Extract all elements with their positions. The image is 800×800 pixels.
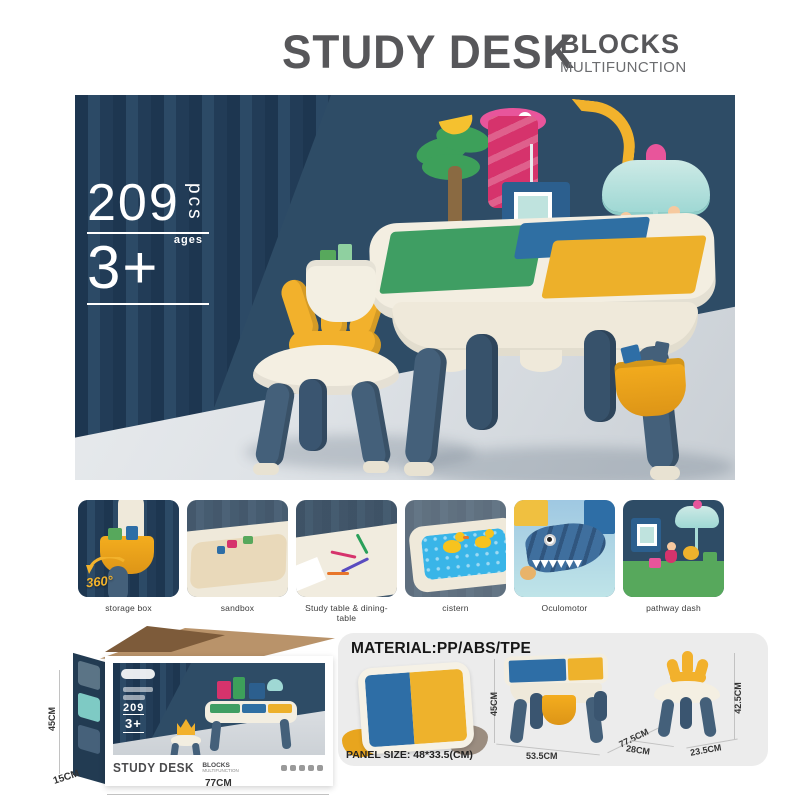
box-subtitle-multifunction: MULTIFUNCTION [202, 769, 238, 774]
box-width-label: 77CM [205, 778, 232, 789]
feature-caption: cistern [405, 603, 506, 613]
table-basin [187, 519, 288, 597]
block-piece [649, 558, 661, 568]
chair-leg [299, 379, 327, 451]
baseplate-yellow [541, 235, 707, 298]
hanging-bucket [542, 695, 576, 725]
baseplate-yellow [568, 657, 604, 680]
building-panel-graphic [357, 661, 475, 755]
table-diagram: 45CM 53.5CM 77.5CM [490, 641, 630, 759]
water-basin [408, 517, 506, 594]
marker-pen [356, 533, 369, 554]
block-piece [514, 500, 548, 526]
product-poster: STUDY DESK BLOCKS MULTIFUNCTION 209 pcs … [0, 0, 800, 800]
feature-gallery: 360° storage box sandbox [78, 500, 724, 623]
side-photo [78, 724, 100, 754]
chair-leg [170, 743, 179, 755]
feature-item: cistern [405, 500, 506, 623]
pieces-age-callout: 209 3+ [123, 687, 153, 733]
block-piece [703, 552, 717, 564]
side-photo [78, 660, 100, 690]
baseplate-blue [242, 704, 266, 713]
drawing-paper [296, 557, 326, 592]
chair-leg [657, 698, 675, 737]
hero-photo: 209 pcs ages 3+ [75, 95, 735, 480]
feature-photo-sandbox [187, 500, 288, 597]
box-title: STUDY DESK [113, 761, 194, 775]
box-height-label: 45CM [47, 707, 57, 731]
mini-crown [668, 649, 708, 683]
storage-cup [306, 260, 376, 322]
feature-photo-study-table [296, 500, 397, 597]
mini-crown [177, 719, 195, 735]
feature-item: sandbox [187, 500, 288, 623]
pieces-age-callout: 209 pcs ages 3+ [87, 179, 237, 307]
chair-diagram: 28CM 23.5CM 42.5CM [638, 649, 738, 755]
certification-icons [281, 765, 325, 771]
rotation-overlay: 360° [85, 573, 113, 591]
chair-foot [253, 463, 279, 475]
box-side-panel [73, 653, 105, 784]
feature-photo-cistern [405, 500, 506, 597]
block-piece [108, 528, 122, 540]
feature-item: 360° storage box [78, 500, 179, 623]
carousel-finial [693, 500, 702, 509]
brand-logo [121, 669, 155, 679]
subtitle-blocks: BLOCKS [560, 31, 750, 58]
block-piece [217, 681, 231, 699]
baseplate-green [623, 561, 724, 597]
table-foot [650, 466, 680, 480]
block-house [631, 518, 661, 552]
table-height-label: 45CM [489, 692, 499, 716]
skirt-scallop [520, 350, 562, 372]
carousel-canopy [675, 506, 719, 528]
cert-icon [308, 765, 314, 771]
box-artwork: 209 3+ [113, 663, 325, 755]
table-leg [594, 691, 607, 721]
box-subtitle: BLOCKS MULTIFUNCTION [202, 763, 238, 774]
lion-toy [683, 546, 699, 560]
toy-piece [227, 540, 237, 548]
block-piece [126, 526, 138, 540]
duck-toy [485, 529, 494, 538]
block-piece [267, 679, 283, 691]
duck-toy [463, 536, 469, 539]
feature-item: Study table & dining-table [296, 500, 397, 623]
feature-caption: Study table & dining-table [296, 603, 397, 623]
table-leg [509, 698, 527, 743]
crayon [327, 572, 349, 575]
specs-panel: MATERIAL:PP/ABS/TPE PANEL SIZE: 48*33.5(… [338, 633, 768, 766]
feature-item: Oculomotor [514, 500, 615, 623]
chair-leg [254, 381, 296, 469]
table-leg [466, 334, 498, 430]
block-table [370, 110, 715, 480]
text-bar [123, 687, 153, 692]
feature-item: pathway dash [623, 500, 724, 623]
ages-label: ages [174, 234, 203, 246]
table-width-label: 53.5CM [526, 751, 558, 761]
chair-height-label: 42.5CM [733, 682, 743, 714]
pieces-count: 209 [123, 703, 153, 714]
carousel-canopy [602, 160, 710, 212]
block-piece [249, 683, 265, 699]
croc-pupil [547, 537, 552, 542]
page-title: STUDY DESK [282, 24, 575, 79]
sand-surface [190, 533, 287, 589]
pieces-unit: pcs [183, 179, 205, 222]
box-front-panel: 209 3+ [105, 656, 333, 786]
crayon [341, 557, 369, 573]
feature-photo-pathway-dash [623, 500, 724, 597]
table-foot [404, 462, 434, 476]
page-subtitle-group: BLOCKS MULTIFUNCTION [560, 31, 750, 75]
divider [87, 303, 209, 305]
baseplate-green [210, 704, 240, 713]
diagram-tabletop [504, 653, 609, 687]
pieces-count: 209 [87, 179, 180, 228]
figure-body [665, 550, 677, 563]
dimension-line [59, 670, 60, 774]
subtitle-multifunction: MULTIFUNCTION [560, 60, 750, 75]
cert-icon [290, 765, 296, 771]
house-window [637, 524, 657, 546]
hanging-bucket [614, 358, 688, 419]
chair-depth-label: 23.5CM [689, 742, 722, 757]
side-photo [78, 692, 100, 722]
box-depth-label: 15CM [52, 768, 81, 787]
age-value: 3+ [123, 714, 144, 733]
toy-piece [243, 536, 253, 544]
ball-toy [520, 566, 536, 580]
toy-piece [217, 546, 225, 554]
crayon [330, 550, 356, 558]
block-piece [233, 677, 245, 699]
mini-playset [209, 677, 293, 703]
feature-caption: pathway dash [623, 603, 724, 613]
cert-icon [317, 765, 323, 771]
table-leg [584, 330, 616, 422]
feature-caption: Oculomotor [514, 603, 615, 613]
chair-leg [699, 696, 717, 737]
chair-leg [680, 697, 692, 729]
cert-icon [299, 765, 305, 771]
panel-blue-half [365, 672, 415, 747]
feature-photo-oculomotor [514, 500, 615, 597]
baseplate-yellow [268, 704, 292, 713]
packaging-box: 209 3+ [45, 626, 340, 791]
dimension-line [107, 794, 329, 795]
feature-caption: sandbox [187, 603, 288, 613]
baseplate-blue [509, 659, 567, 683]
feature-photo-storage-box: 360° [78, 500, 179, 597]
cert-icon [281, 765, 287, 771]
panel-yellow-half [410, 669, 468, 745]
table-leg [404, 347, 448, 468]
panel-size-label: PANEL SIZE: 48*33.5(CM) [346, 749, 473, 761]
feature-caption: storage box [78, 603, 179, 613]
text-bar [123, 695, 145, 700]
